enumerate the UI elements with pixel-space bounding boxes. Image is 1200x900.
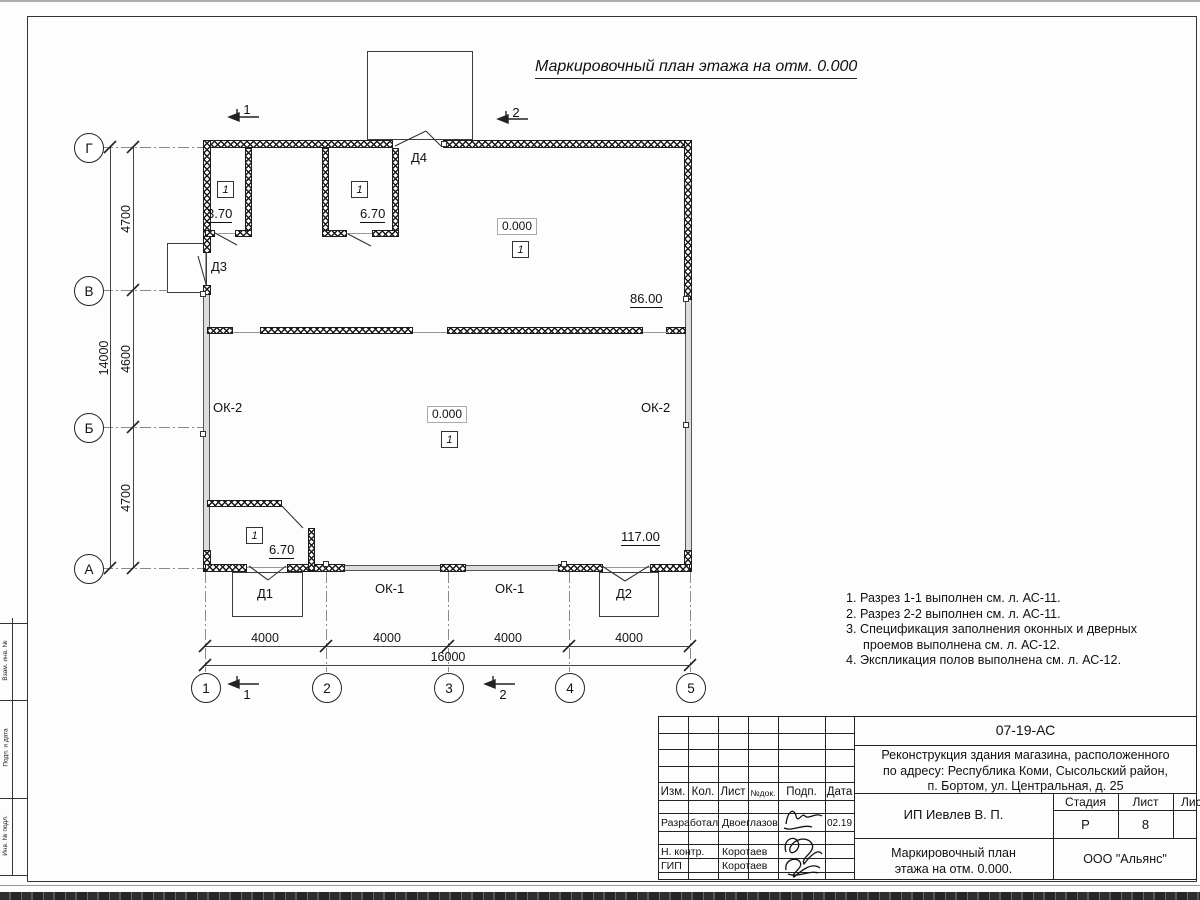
- tb-project-line: п. Бортом, ул. Центральная, д. 25: [854, 779, 1197, 795]
- tb-line: [658, 766, 854, 767]
- tb-role-razrabotal: Разработал: [661, 817, 718, 829]
- tb-organization: ООО "Альянс": [1053, 852, 1197, 866]
- tb-role-nkontr: Н. контр.: [661, 846, 704, 858]
- tb-project-line: Реконструкция здания магазина, расположе…: [854, 748, 1197, 764]
- dimension-ticks: [104, 141, 696, 671]
- door-swing-broom: [281, 505, 303, 528]
- note-item: 2. Разрез 2-2 выполнен см. л. АС-11.: [846, 607, 1182, 623]
- tb-line: [854, 838, 1197, 839]
- door-swing-d1: [249, 566, 286, 580]
- tb-project-name: Реконструкция здания магазина, расположе…: [854, 748, 1197, 795]
- door-swing-room1: [215, 233, 237, 245]
- tb-col-ndok: №док.: [748, 788, 778, 798]
- tb-client: ИП Иевлев В. П.: [854, 807, 1053, 822]
- tb-line: [1053, 810, 1197, 811]
- tb-col-list: Лист: [718, 786, 748, 798]
- tb-project-line: по адресу: Республика Коми, Сысольский р…: [854, 764, 1197, 780]
- tb-drawing-name-line: Маркировочный план: [854, 845, 1053, 861]
- tb-sheet-value: 8: [1118, 817, 1173, 832]
- section-mark-2-top: [498, 111, 528, 123]
- signatures: [778, 800, 825, 878]
- tb-drawing-name-line: этажа на отм. 0.000.: [854, 861, 1053, 877]
- tb-line: [658, 733, 854, 734]
- tb-line: [658, 749, 854, 750]
- section-mark-2-bottom: [485, 676, 515, 688]
- tb-drawing-name: Маркировочный план этажа на отм. 0.000.: [854, 845, 1053, 877]
- tb-name-dvoeglazov: Двоеглазов: [722, 817, 778, 829]
- tb-name-korotaev-1: Коротаев: [722, 846, 767, 858]
- note-item: 1. Разрез 1-1 выполнен см. л. АС-11.: [846, 591, 1182, 607]
- note-item: 4. Экспликация полов выполнена см. л. АС…: [846, 653, 1182, 669]
- tb-line: [825, 716, 826, 880]
- tb-line: [658, 782, 854, 783]
- tb-col-podp: Подп.: [778, 786, 825, 798]
- tb-line: [854, 745, 1197, 746]
- door-swing-d2: [602, 566, 649, 581]
- tb-line: [718, 716, 719, 880]
- tb-stage-label: Стадия: [1053, 795, 1118, 809]
- tb-col-kol: Кол.: [688, 786, 718, 798]
- section-mark-1-top: [229, 109, 259, 121]
- door-swing-d3: [198, 256, 206, 284]
- door-swing-room2: [348, 234, 371, 246]
- tb-stage-value: Р: [1053, 817, 1118, 832]
- note-item: 3. Спецификация заполнения оконных и две…: [846, 622, 1182, 653]
- section-mark-1-bottom: [229, 676, 259, 688]
- tb-col-izm: Изм.: [658, 786, 688, 798]
- door-swing-d4: [395, 131, 441, 146]
- signature-razrabotal: [784, 811, 822, 829]
- tb-doc-number: 07-19-АС: [854, 722, 1197, 738]
- tb-sheets-label: Листов: [1173, 795, 1200, 809]
- tb-date-0219: 02.19: [826, 818, 853, 829]
- tb-sheet-label: Лист: [1118, 795, 1173, 809]
- tb-role-gip: ГИП: [661, 860, 682, 872]
- notes-block: 1. Разрез 1-1 выполнен см. л. АС-11. 2. …: [846, 591, 1182, 669]
- tb-col-data: Дата: [825, 786, 854, 798]
- tb-name-korotaev-2: Коротаев: [722, 860, 767, 872]
- drawing-sheet: Взам. инв. № Подп. и дата Инв. № подл. М…: [0, 0, 1200, 900]
